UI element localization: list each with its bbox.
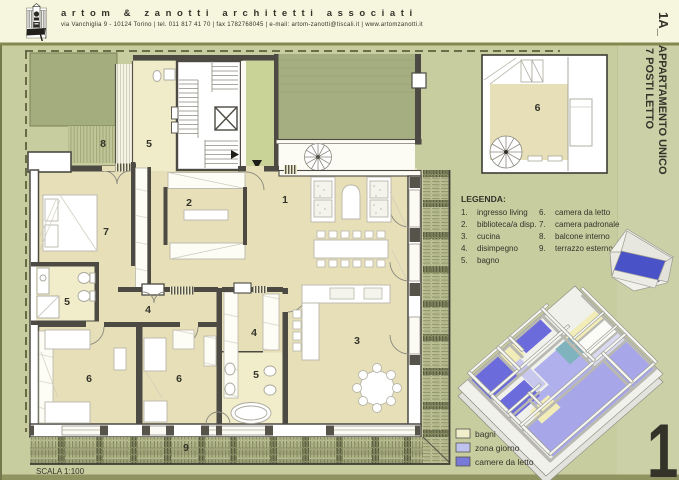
svg-text:balcone interno: balcone interno (555, 232, 610, 241)
svg-text:2: 2 (186, 197, 192, 209)
svg-text:7.: 7. (539, 220, 546, 229)
svg-text:via Vanchiglia 9 - 10124 Torin: via Vanchiglia 9 - 10124 Torino | tel. 0… (61, 22, 423, 28)
svg-text:6: 6 (86, 373, 92, 385)
svg-text:1: 1 (282, 194, 288, 206)
svg-text:9.: 9. (539, 244, 546, 253)
svg-text:7: 7 (103, 226, 109, 238)
svg-text:terrazzo esterno: terrazzo esterno (555, 244, 613, 253)
svg-text:2.: 2. (461, 220, 468, 229)
svg-text:1: 1 (647, 409, 678, 480)
svg-text:SCALA 1:100: SCALA 1:100 (36, 467, 85, 476)
svg-text:ingresso living: ingresso living (477, 208, 528, 217)
svg-text:bagni: bagni (475, 429, 496, 439)
svg-text:5: 5 (253, 369, 259, 381)
svg-text:4: 4 (145, 304, 151, 316)
svg-text:6.: 6. (539, 208, 546, 217)
svg-text:artom & zanotti architetti ass: artom & zanotti architetti associati (61, 8, 418, 19)
svg-text:6: 6 (176, 373, 182, 385)
svg-text:1A_: 1A_ (656, 12, 671, 37)
svg-text:5: 5 (146, 138, 152, 150)
svg-text:cucina: cucina (477, 232, 501, 241)
svg-text:LEGENDA:: LEGENDA: (461, 194, 506, 204)
svg-text:8.: 8. (539, 232, 546, 241)
svg-text:9: 9 (183, 442, 189, 454)
svg-text:camera padronale: camera padronale (555, 220, 620, 229)
svg-text:5: 5 (64, 296, 70, 308)
svg-text:camere da letto: camere da letto (475, 457, 534, 467)
svg-text:bagno: bagno (477, 256, 500, 265)
svg-text:biblioteca/a disp.: biblioteca/a disp. (477, 220, 537, 229)
svg-text:8: 8 (100, 138, 106, 150)
svg-text:camera da letto: camera da letto (555, 208, 611, 217)
svg-text:zona giorno: zona giorno (475, 443, 520, 453)
svg-text:7 POSTI LETTO: 7 POSTI LETTO (643, 48, 655, 130)
svg-text:disimpegno: disimpegno (477, 244, 518, 253)
svg-text:4.: 4. (461, 244, 468, 253)
svg-text:6: 6 (535, 102, 541, 114)
svg-text:4: 4 (251, 327, 257, 339)
svg-text:3.: 3. (461, 232, 468, 241)
svg-text:5.: 5. (461, 256, 468, 265)
svg-text:APPARTAMENTO UNICO: APPARTAMENTO UNICO (656, 45, 668, 175)
svg-text:1.: 1. (461, 208, 468, 217)
svg-text:3: 3 (354, 335, 360, 347)
